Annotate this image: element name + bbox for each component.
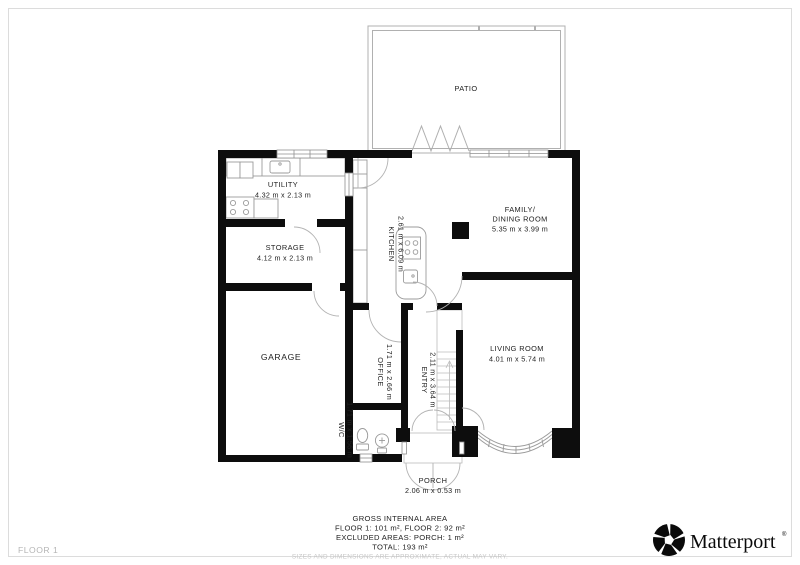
entry-label: ENTRY (420, 367, 429, 394)
entry-dims: 2.11 m x 3.64 m (429, 352, 438, 408)
living-room-label: LIVING ROOM (490, 344, 544, 353)
bay-window (478, 431, 552, 454)
kitchen-side-door (358, 158, 388, 188)
kitchen-dims: 2.61 m x 6.09 m (397, 216, 406, 272)
utility-label: UTILITY (268, 180, 298, 189)
kitchen-label: KITCHEN (387, 226, 396, 261)
utility-cabinet (240, 162, 253, 178)
living-room-dims: 4.01 m x 5.74 m (489, 355, 545, 364)
wc-basin (375, 434, 388, 453)
utility-window (277, 150, 327, 158)
garage-label: GARAGE (261, 352, 301, 362)
matterport-wordmark: Matterport (690, 531, 776, 553)
front-door (412, 410, 455, 431)
floor-areas-line: FLOOR 1: 101 m², FLOOR 2: 92 m² (335, 524, 465, 533)
disclaimer-text: SIZES AND DIMENSIONS ARE APPROXIMATE, AC… (292, 554, 508, 561)
floorplan-page: PATIO UTILITY 4.32 m x 2.13 m STORAGE 4.… (0, 0, 800, 565)
fireplace (452, 222, 469, 239)
excluded-areas-line: EXCLUDED AREAS: PORCH: 1 m² (336, 533, 464, 542)
family-dining-label-2: DINING ROOM (492, 215, 547, 224)
floorplan-svg: PATIO UTILITY 4.32 m x 2.13 m STORAGE 4.… (0, 0, 800, 565)
gross-internal-area-title: GROSS INTERNAL AREA (353, 514, 449, 523)
office-door (369, 310, 401, 342)
porch-dims: 2.06 m x 0.53 m (405, 486, 461, 495)
family-dining-dims: 5.35 m x 3.99 m (492, 225, 548, 234)
utility-dims: 4.32 m x 2.13 m (255, 191, 311, 200)
kitchen-window (345, 173, 353, 196)
fixtures (226, 158, 552, 463)
kitchen-counter (353, 160, 367, 303)
registered-mark: ® (782, 531, 787, 538)
total-area-line: TOTAL: 193 m² (372, 543, 428, 552)
wc-label: W/C (337, 422, 346, 438)
wc-window (360, 454, 372, 462)
footer: GROSS INTERNAL AREA FLOOR 1: 101 m², FLO… (292, 514, 508, 561)
porch-label: PORCH (419, 476, 448, 485)
storage-label: STORAGE (266, 243, 305, 252)
storage-garage-door (314, 291, 339, 316)
floor-indicator: FLOOR 1 (18, 545, 58, 555)
patio-label: PATIO (454, 84, 477, 93)
matterport-pinwheel-icon (648, 521, 689, 561)
office-label: OFFICE (376, 357, 385, 387)
patio-sliding-door (470, 150, 548, 157)
bifold-door-icon (412, 126, 469, 151)
utility-stove (226, 197, 254, 218)
utility-appliance (254, 199, 278, 218)
wc-toilet (357, 429, 369, 451)
office-dims: 1.71 m x 2.66 m (385, 344, 394, 400)
wc-dims: 1.71 m x 1.56 m (346, 402, 355, 458)
storage-dims: 4.12 m x 2.13 m (257, 254, 313, 263)
utility-cabinet (227, 162, 240, 178)
matterport-logo: Matterport ® (648, 521, 787, 561)
family-dining-label-1: FAMILY/ (505, 205, 536, 214)
